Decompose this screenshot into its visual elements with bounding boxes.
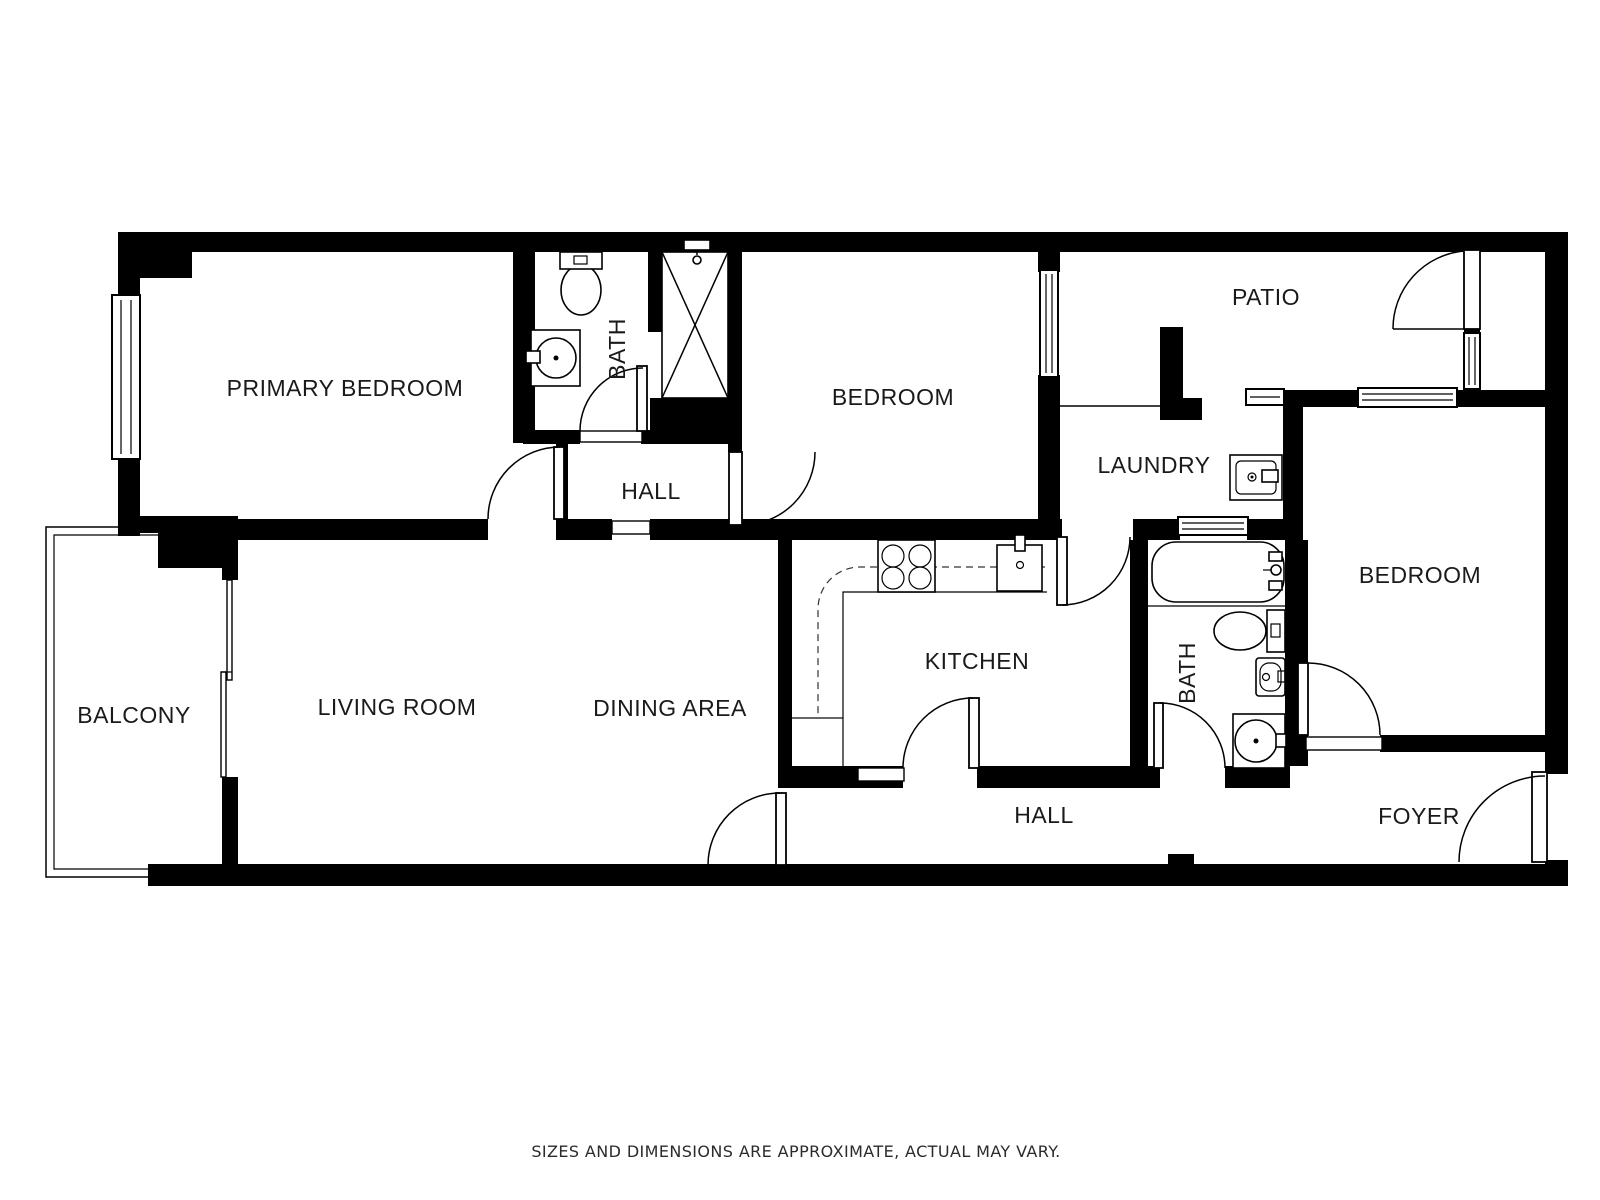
room-label-bath-top: BATH bbox=[604, 318, 630, 380]
stove-fixture bbox=[878, 540, 935, 592]
threshold-hall-middle bbox=[612, 521, 650, 534]
laundry-sink-fixture bbox=[1230, 455, 1282, 500]
room-label-hall-middle: HALL bbox=[621, 478, 681, 504]
room-label-laundry: LAUNDRY bbox=[1098, 452, 1211, 478]
walls bbox=[118, 232, 1568, 886]
threshold-hall-bottom bbox=[858, 768, 904, 781]
window-laundry-patio bbox=[1246, 389, 1284, 405]
window-primary-bedroom bbox=[112, 295, 140, 459]
door-bath-right bbox=[1154, 703, 1225, 768]
room-label-dining-area: DINING AREA bbox=[593, 695, 747, 721]
door-kitchen-hall bbox=[903, 698, 979, 768]
room-label-foyer: FOYER bbox=[1378, 803, 1460, 829]
window-bedroom-right-top bbox=[1358, 388, 1457, 407]
kitchen-sink-fixture bbox=[997, 535, 1042, 591]
sliding-door-balcony bbox=[221, 580, 232, 777]
room-label-balcony: BALCONY bbox=[77, 702, 190, 728]
wall-sink-fixture bbox=[1256, 658, 1285, 696]
entry-door-foyer bbox=[1459, 772, 1547, 862]
floor-plan-svg: PRIMARY BEDROOM BATH HALL BEDROOM PATIO … bbox=[0, 0, 1600, 1200]
threshold-bedroom-right bbox=[1306, 737, 1382, 750]
window-bedroom-patio bbox=[1040, 270, 1058, 377]
room-label-primary-bedroom: PRIMARY BEDROOM bbox=[227, 375, 464, 401]
shower-fixture bbox=[662, 240, 728, 398]
room-label-bedroom-right: BEDROOM bbox=[1359, 562, 1481, 588]
door-hall-dining bbox=[708, 793, 786, 865]
disclaimer-text: SIZES AND DIMENSIONS ARE APPROXIMATE, AC… bbox=[531, 1142, 1060, 1161]
door-kitchen-laundry bbox=[1057, 537, 1130, 605]
toilet-fixture-top-bath bbox=[560, 252, 602, 315]
toilet-fixture-right-bath bbox=[1214, 610, 1285, 652]
threshold-bath-top bbox=[580, 431, 642, 442]
room-label-living-room: LIVING ROOM bbox=[318, 694, 477, 720]
window-patio-right bbox=[1464, 333, 1480, 389]
room-label-kitchen: KITCHEN bbox=[925, 648, 1029, 674]
floor-plan-page: PRIMARY BEDROOM BATH HALL BEDROOM PATIO … bbox=[0, 0, 1600, 1200]
vanity-sink-fixture-top-bath bbox=[526, 330, 580, 386]
room-label-patio: PATIO bbox=[1232, 284, 1300, 310]
door-patio bbox=[1393, 250, 1480, 329]
room-label-bedroom-middle: BEDROOM bbox=[832, 384, 954, 410]
room-label-hall-bottom: HALL bbox=[1014, 802, 1074, 828]
window-laundry-bath bbox=[1178, 517, 1248, 535]
door-bedroom-middle bbox=[729, 452, 815, 525]
door-bedroom-right bbox=[1298, 663, 1380, 735]
vanity-sink-fixture-right-bath bbox=[1233, 714, 1286, 768]
door-primary-bedroom bbox=[488, 447, 564, 519]
bathtub-fixture bbox=[1148, 542, 1285, 606]
room-label-bath-right: BATH bbox=[1174, 642, 1200, 704]
